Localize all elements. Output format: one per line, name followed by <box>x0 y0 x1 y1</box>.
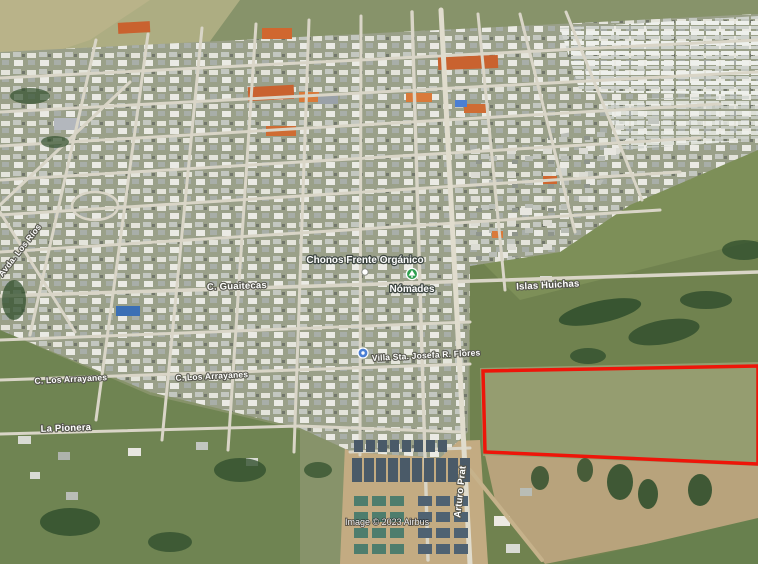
white-place-dot-icon <box>362 269 368 275</box>
satellite-map-canvas[interactable]: Chonos Frente Orgánico Nómades Villa Sta… <box>0 0 758 564</box>
place-label-nomades: Nómades <box>389 284 434 295</box>
google-earth-aerial-view[interactable]: Chonos Frente Orgánico Nómades Villa Sta… <box>0 0 758 564</box>
street-label-pionera: La Pionera <box>40 422 91 435</box>
place-label-chonos: Chonos Frente Orgánico <box>306 255 423 266</box>
street-label-guaitecas: C. Guaitecas <box>207 280 267 293</box>
imagery-attribution: Image © 2023 Airbus <box>345 517 430 527</box>
marker-center-dot <box>361 351 364 354</box>
